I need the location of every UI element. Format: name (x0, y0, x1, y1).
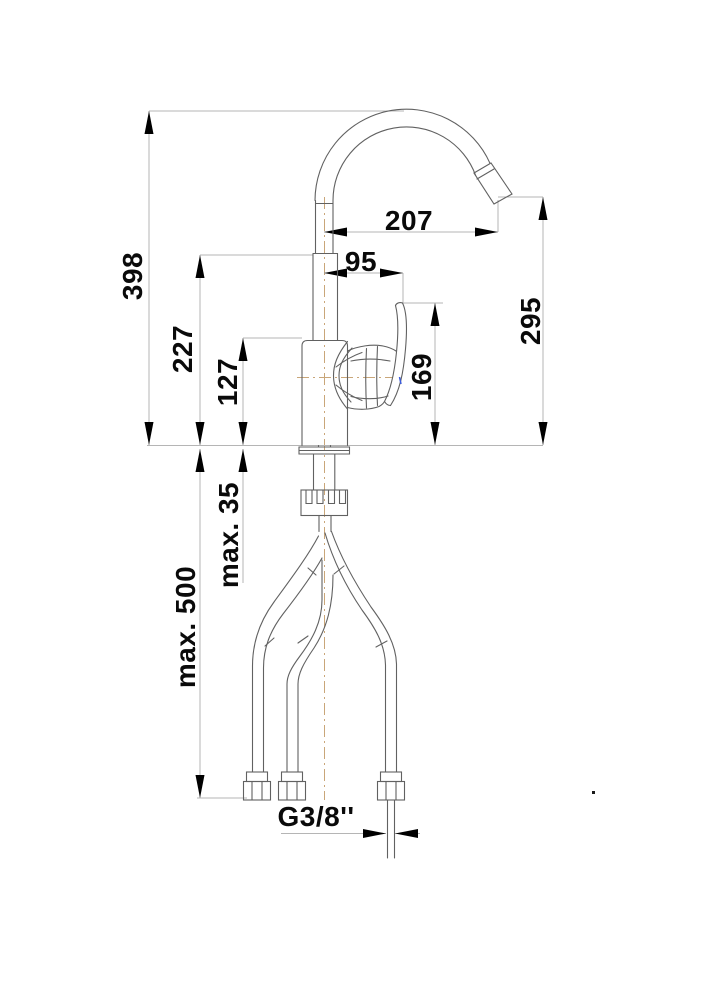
dimension-arrowheads (145, 111, 548, 838)
drawing-canvas: 398 227 127 max. 500 max. 35 169 295 207… (0, 0, 707, 1000)
dim-label-body-height: 127 (214, 358, 242, 406)
dim-label-height-total: 398 (119, 252, 147, 300)
stray-dot (592, 791, 595, 794)
dim-label-handle-reach: 95 (345, 248, 377, 276)
column (313, 254, 338, 341)
dim-label-outlet-height: 295 (517, 297, 545, 345)
spout-outlet (474, 163, 512, 204)
dim-label-handle-top-height: 169 (408, 353, 436, 401)
dim-label-connection-thread: G3/8'' (277, 803, 354, 831)
dimension-lines (147, 111, 543, 834)
dim-label-spout-reach: 207 (385, 207, 433, 235)
faucet-line-art (0, 0, 707, 1000)
handle-lever (334, 303, 407, 410)
faucet-outline (244, 109, 513, 858)
dim-label-max-hose-length: max. 500 (172, 566, 200, 688)
dim-label-max-deck-thickness: max. 35 (215, 482, 243, 588)
dim-label-upper-column-height: 227 (169, 325, 197, 373)
